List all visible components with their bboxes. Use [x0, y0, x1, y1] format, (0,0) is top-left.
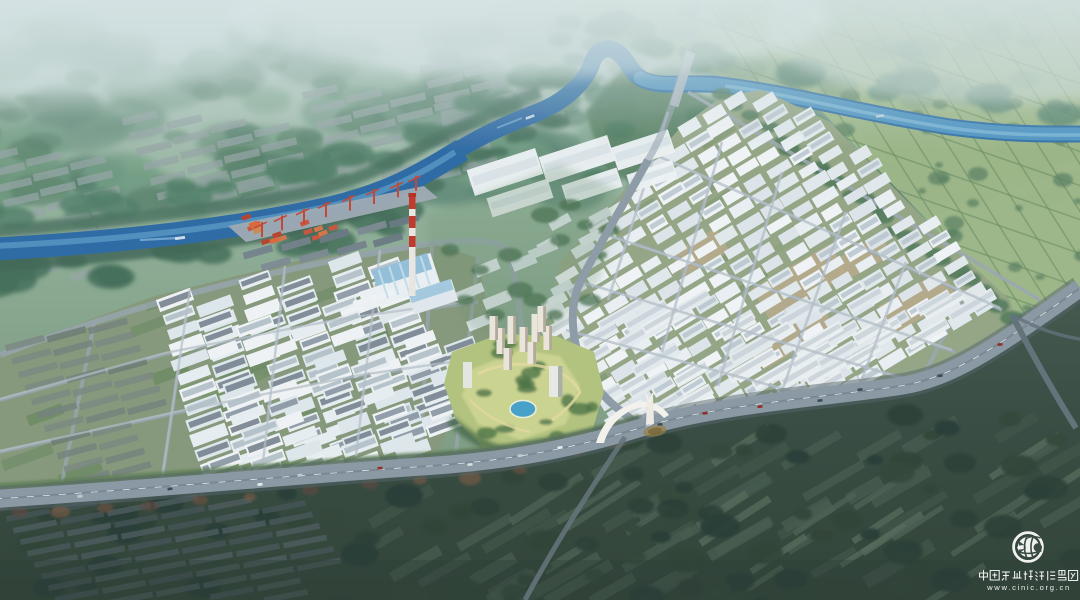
svg-text:www.cinic.org.cn: www.cinic.org.cn [986, 583, 1071, 592]
